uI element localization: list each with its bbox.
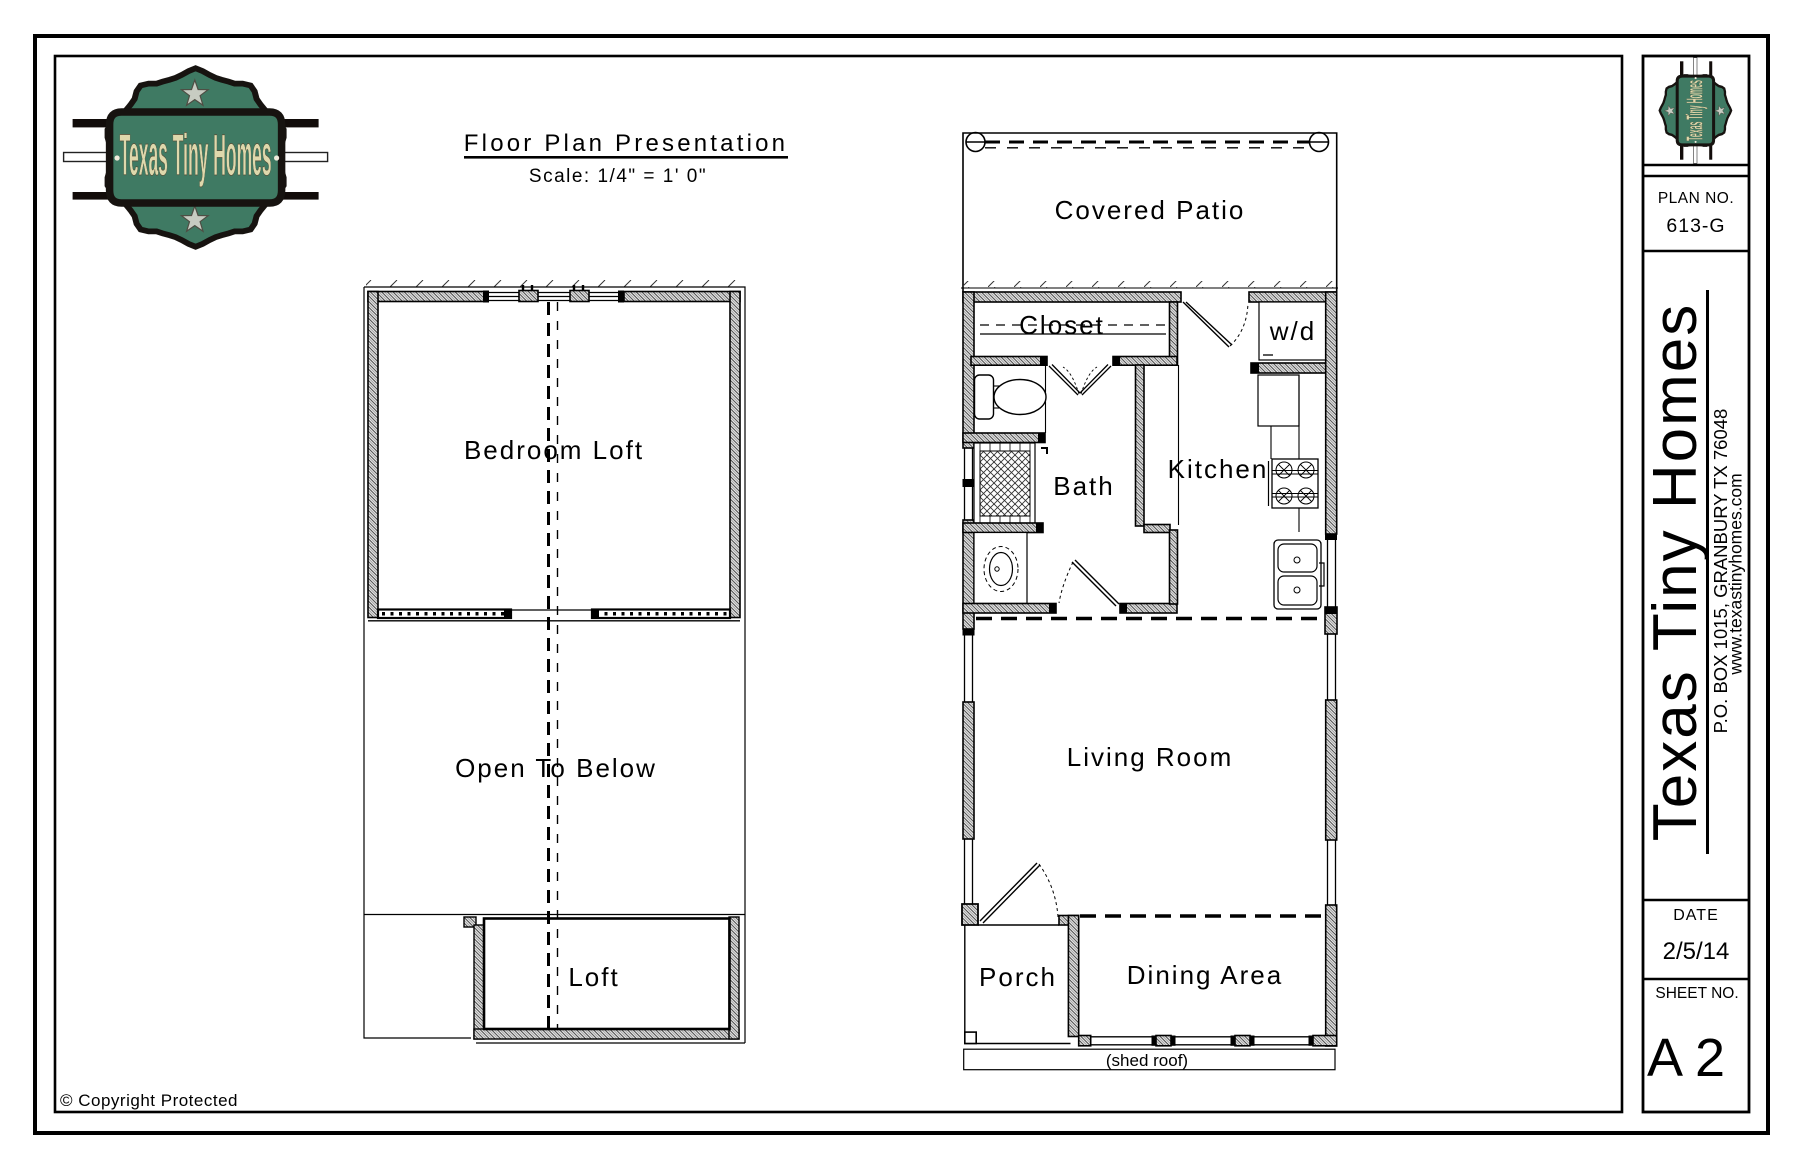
svg-text:Floor Plan Presentation: Floor Plan Presentation (464, 130, 788, 157)
svg-text:Dining Area: Dining Area (1127, 960, 1283, 990)
svg-text:Closet: Closet (1019, 310, 1105, 340)
svg-text:www.texastinyhomes.com: www.texastinyhomes.com (1726, 473, 1746, 675)
svg-text:2/5/14: 2/5/14 (1663, 938, 1730, 965)
svg-text:Open To Below: Open To Below (455, 753, 657, 783)
svg-text:Scale: 1/4" = 1' 0": Scale: 1/4" = 1' 0" (529, 166, 707, 187)
svg-text:© Copyright Protected: © Copyright Protected (60, 1091, 238, 1110)
svg-text:DATE: DATE (1673, 907, 1718, 924)
svg-text:Bedroom Loft: Bedroom Loft (464, 435, 644, 465)
svg-text:(shed roof): (shed roof) (1106, 1051, 1188, 1070)
svg-text:SHEET NO.: SHEET NO. (1655, 985, 1738, 1002)
svg-text:Porch: Porch (979, 962, 1057, 992)
svg-text:Bath: Bath (1053, 471, 1115, 501)
svg-text:A 2: A 2 (1647, 1028, 1725, 1088)
svg-text:PLAN NO.: PLAN NO. (1658, 190, 1734, 207)
svg-text:613-G: 613-G (1666, 215, 1725, 237)
svg-text:w/d: w/d (1269, 316, 1316, 346)
svg-text:Living Room: Living Room (1067, 742, 1234, 772)
svg-text:Texas Tiny Homes: Texas Tiny Homes (1641, 303, 1710, 842)
svg-text:Kitchen: Kitchen (1168, 454, 1269, 484)
svg-text:Covered Patio: Covered Patio (1055, 195, 1246, 225)
svg-text:Loft: Loft (568, 962, 619, 992)
